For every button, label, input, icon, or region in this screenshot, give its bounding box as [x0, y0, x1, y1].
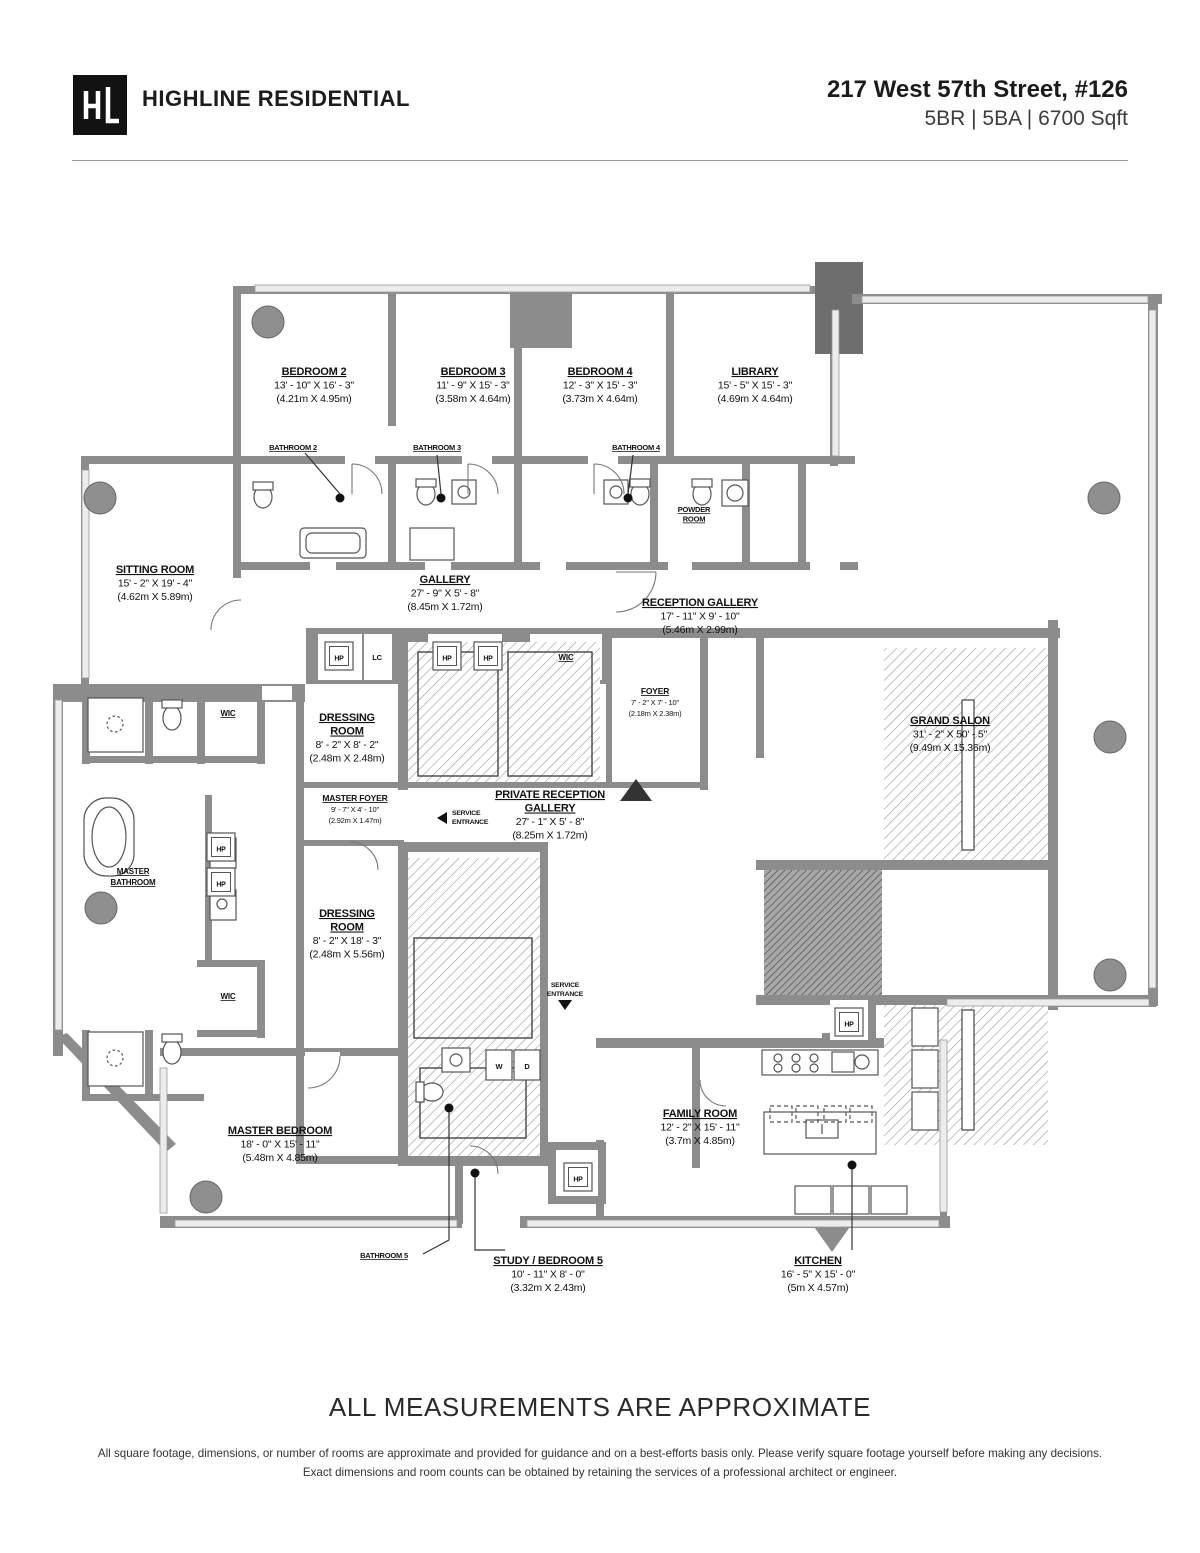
room-dim-ft-familyroom: 12' - 2" X 15' - 11"	[660, 1122, 740, 1134]
room-dim-ft-foyer: 7' - 2" X 7' - 10"	[631, 698, 679, 707]
room-dim-m-reception: (5.46m X 2.99m)	[662, 624, 737, 636]
room-dim-m-familyroom: (3.7m X 4.85m)	[665, 1135, 735, 1147]
room-dim-ft-reception: 17' - 11" X 9' - 10"	[660, 611, 740, 623]
room-dim-ft-dressing2: 8' - 2" X 18' - 3"	[313, 935, 382, 947]
room-label-library: LIBRARY	[731, 366, 779, 378]
room-label-masterfoyer: MASTER FOYER	[322, 793, 387, 803]
room-dim-ft-bedroom3: 11' - 9" X 15' - 3"	[436, 380, 510, 392]
room-label-study: STUDY / BEDROOM 5	[493, 1255, 603, 1267]
room-dim-m-gallery: (8.45m X 1.72m)	[407, 601, 482, 613]
room-label-privatereception: PRIVATE RECEPTION	[495, 789, 605, 801]
floor-plan: BEDROOM 213' - 10" X 16' - 3"(4.21m X 4.…	[0, 0, 1200, 1553]
label-wic: WIC	[221, 709, 236, 718]
room-label-dressing2: ROOM	[330, 922, 363, 934]
room-dim-ft-bedroom2: 13' - 10" X 16' - 3"	[274, 380, 354, 392]
room-dim-ft-sitting: 15' - 2" X 19' - 4"	[118, 578, 193, 590]
label-wic: WIC	[221, 992, 236, 1001]
room-dim-m-foyer: (2.18m X 2.38m)	[629, 709, 683, 718]
room-dim-ft-dressing1: 8' - 2" X 8' - 2"	[316, 739, 379, 751]
label-hp: HP	[573, 1177, 583, 1184]
label-dryer: D	[524, 1062, 530, 1071]
label-service-entrance: ENTRANCE	[547, 991, 584, 998]
label-bathroom3: BATHROOM 3	[413, 443, 461, 452]
room-label-sitting: SITTING ROOM	[116, 564, 194, 576]
label-hp: HP	[334, 656, 344, 663]
room-label-dressing1: DRESSING	[319, 712, 375, 724]
label-bathroom2: BATHROOM 2	[269, 443, 317, 452]
label-service-entrance: SERVICE	[452, 810, 481, 817]
measurements-notice: ALL MEASUREMENTS ARE APPROXIMATE	[0, 1392, 1200, 1423]
label-lc: LC	[372, 653, 382, 662]
room-dim-m-grandsalon: (9.49m X 15.36m)	[910, 742, 991, 754]
room-label-familyroom: FAMILY ROOM	[663, 1108, 737, 1120]
room-dim-m-sitting: (4.62m X 5.89m)	[117, 591, 192, 603]
room-label-dressing1: ROOM	[330, 726, 363, 738]
room-label-reception: RECEPTION GALLERY	[642, 597, 759, 609]
room-label-bedroom4: BEDROOM 4	[568, 366, 634, 378]
label-hp: HP	[442, 656, 452, 663]
room-label-bedroom3: BEDROOM 3	[441, 366, 506, 378]
label-hp: HP	[216, 882, 226, 889]
room-dim-m-privatereception: (8.25m X 1.72m)	[512, 830, 587, 842]
label-wic: WIC	[559, 653, 574, 662]
label-powder-room: POWDER	[678, 505, 711, 514]
label-service-entrance: ENTRANCE	[452, 819, 489, 826]
label-bathroom4: BATHROOM 4	[612, 443, 661, 452]
service-entrance-arrow-icon	[437, 812, 447, 824]
room-dim-m-masterfoyer: (2.92m X 1.47m)	[329, 816, 383, 825]
room-label-privatereception: GALLERY	[525, 803, 577, 815]
room-dim-m-dressing2: (2.48m X 5.56m)	[309, 949, 384, 961]
label-hp: HP	[216, 847, 226, 854]
label-bathroom5: BATHROOM 5	[360, 1251, 408, 1260]
label-washer: W	[496, 1062, 504, 1071]
room-label-grandsalon: GRAND SALON	[910, 715, 990, 727]
room-dim-ft-gallery: 27' - 9" X 5' - 8"	[411, 588, 480, 600]
room-dim-m-bedroom3: (3.58m X 4.64m)	[435, 393, 510, 405]
room-dim-m-bedroom2: (4.21m X 4.95m)	[276, 393, 351, 405]
room-dim-m-study: (3.32m X 2.43m)	[510, 1282, 585, 1294]
label-master-bathroom: BATHROOM	[111, 878, 156, 887]
room-label-gallery: GALLERY	[420, 574, 472, 586]
label-powder-room: ROOM	[683, 515, 706, 524]
room-dim-ft-privatereception: 27' - 1" X 5' - 8"	[516, 816, 585, 828]
label-hp: HP	[483, 656, 493, 663]
room-dim-ft-kitchen: 16' - 5" X 15' - 0"	[781, 1269, 856, 1281]
room-dim-ft-masterfoyer: 9' - 7" X 4' - 10"	[331, 805, 379, 814]
service-entrance-arrow-icon	[558, 1000, 572, 1010]
room-dim-m-kitchen: (5m X 4.57m)	[787, 1282, 848, 1294]
room-dim-m-library: (4.69m X 4.64m)	[717, 393, 792, 405]
room-dim-ft-study: 10' - 11" X 8' - 0"	[511, 1269, 585, 1281]
room-label-foyer: FOYER	[641, 686, 669, 696]
room-dim-ft-library: 15' - 5" X 15' - 3"	[718, 380, 793, 392]
label-master-bathroom: MASTER	[117, 867, 150, 876]
room-dim-ft-masterbedroom: 18' - 0" X 15' - 11"	[240, 1139, 320, 1151]
room-dim-m-bedroom4: (3.73m X 4.64m)	[562, 393, 637, 405]
disclaimer-text: All square footage, dimensions, or numbe…	[95, 1444, 1105, 1482]
room-label-masterbedroom: MASTER BEDROOM	[228, 1125, 332, 1137]
label-hp: HP	[844, 1022, 854, 1029]
room-dim-ft-bedroom4: 12' - 3" X 15' - 3"	[563, 380, 638, 392]
room-dim-m-dressing1: (2.48m X 2.48m)	[309, 753, 384, 765]
room-label-bedroom2: BEDROOM 2	[282, 366, 347, 378]
label-service-entrance: SERVICE	[551, 982, 580, 989]
room-label-kitchen: KITCHEN	[794, 1255, 842, 1267]
room-dim-ft-grandsalon: 31' - 2" X 50' - 5"	[913, 729, 988, 741]
room-dim-m-masterbedroom: (5.48m X 4.85m)	[242, 1152, 317, 1164]
room-label-dressing2: DRESSING	[319, 908, 375, 920]
